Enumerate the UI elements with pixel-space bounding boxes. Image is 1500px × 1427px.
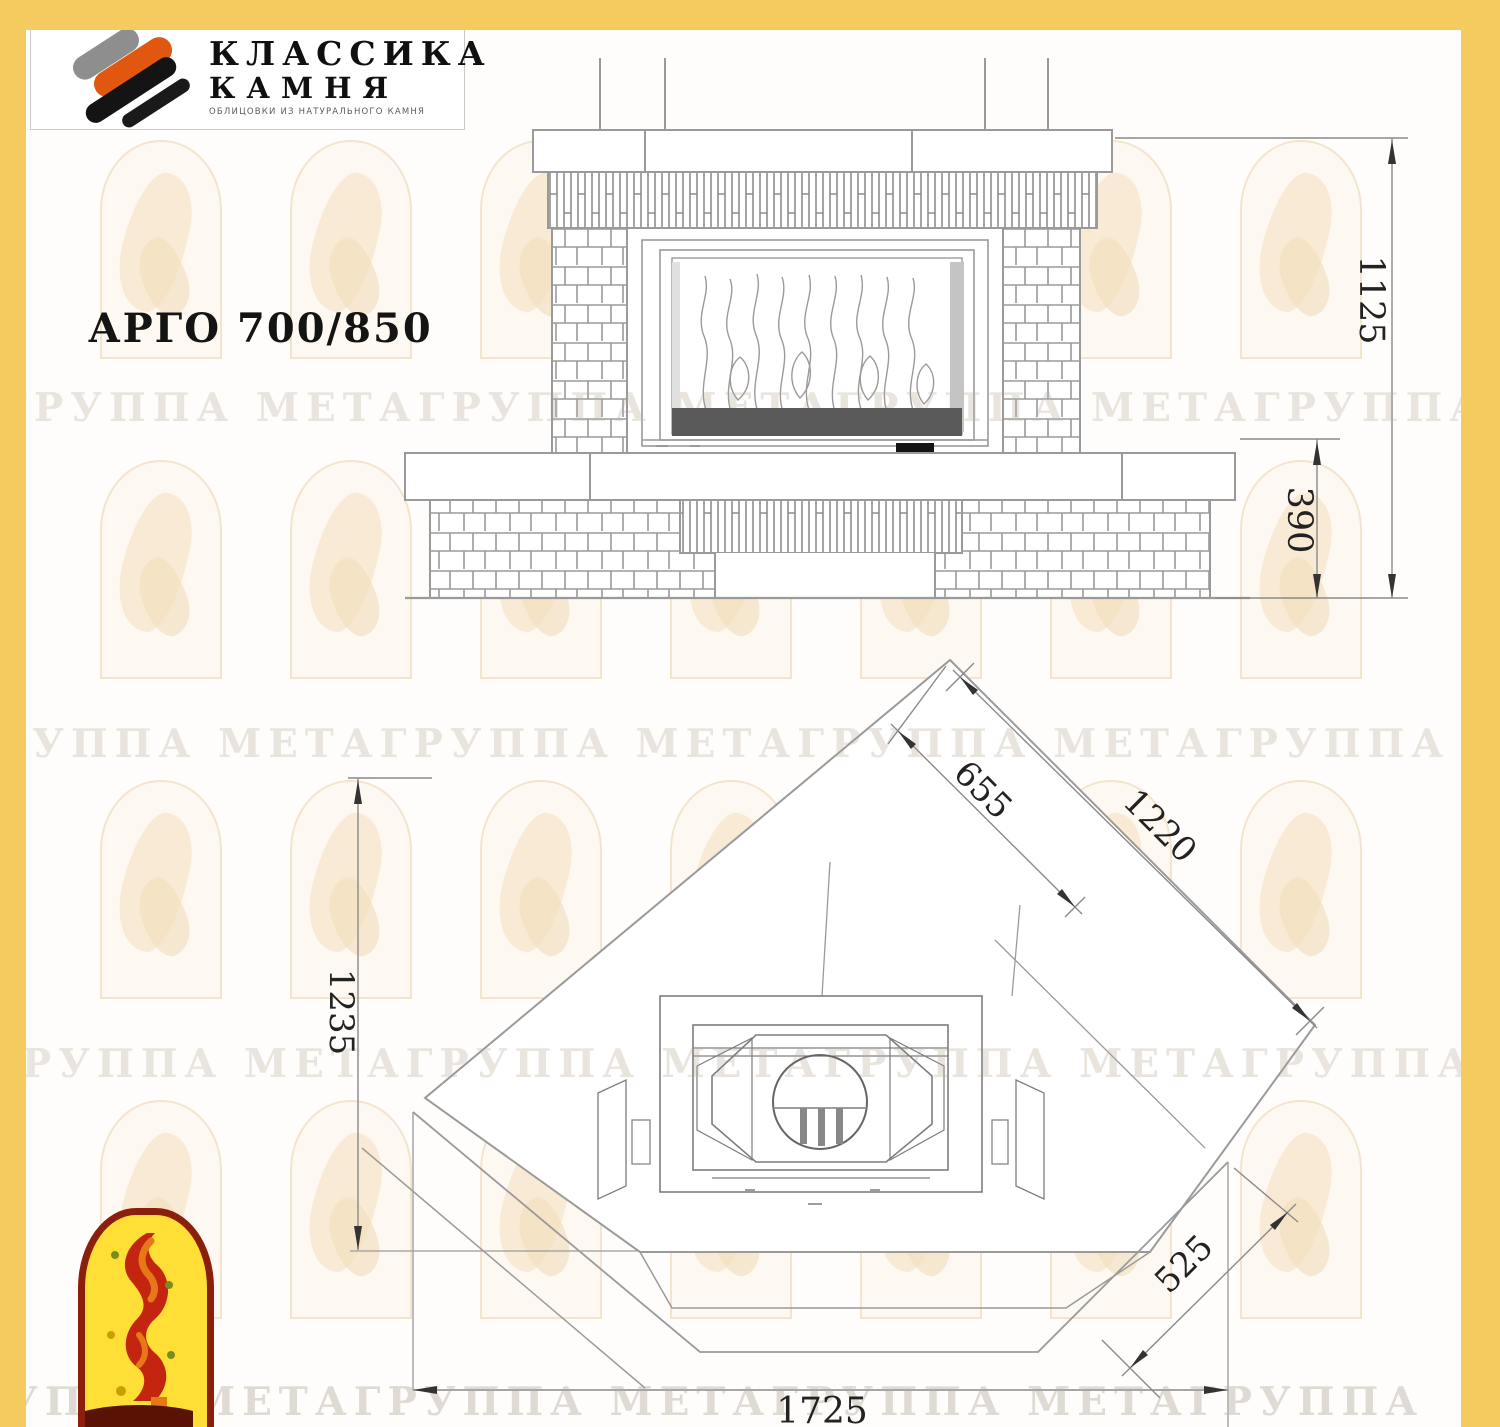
firebox-plan xyxy=(598,996,1044,1204)
plan-view: 655 1220 1235 525 1725 xyxy=(321,660,1324,1427)
technical-drawing-svg: 1125 390 xyxy=(0,0,1500,1427)
logo-title-line1: КЛАССИКА xyxy=(209,36,492,72)
chimney-lines xyxy=(600,58,1048,130)
firebird-figure xyxy=(85,1215,193,1427)
logo-tagline: ОБЛИЦОВКИ ИЗ НАТУРАЛЬНОГО КАМНЯ xyxy=(209,107,492,117)
logo-title-line2: КАМНЯ xyxy=(209,72,492,104)
sheet-frame-right xyxy=(1461,0,1500,1427)
sheet-frame-left xyxy=(0,0,26,1427)
firebox-front xyxy=(627,228,1003,455)
dim-label-1235: 1235 xyxy=(321,969,361,1056)
front-elevation-view: 1125 390 xyxy=(405,58,1408,598)
firebird-emblem xyxy=(78,1208,214,1427)
base-masonry xyxy=(430,500,1210,598)
model-title: АРГО 700/850 xyxy=(88,305,433,352)
drawing-sheet: 1125 390 xyxy=(0,0,1500,1427)
dim-label-1725: 1725 xyxy=(776,1391,868,1427)
dim-label-390: 390 xyxy=(1279,487,1319,554)
company-logo: КЛАССИКА КАМНЯ ОБЛИЦОВКИ ИЗ НАТУРАЛЬНОГО… xyxy=(30,27,465,130)
sheet-frame-top xyxy=(0,0,1500,30)
dim-label-1125: 1125 xyxy=(1351,255,1391,344)
